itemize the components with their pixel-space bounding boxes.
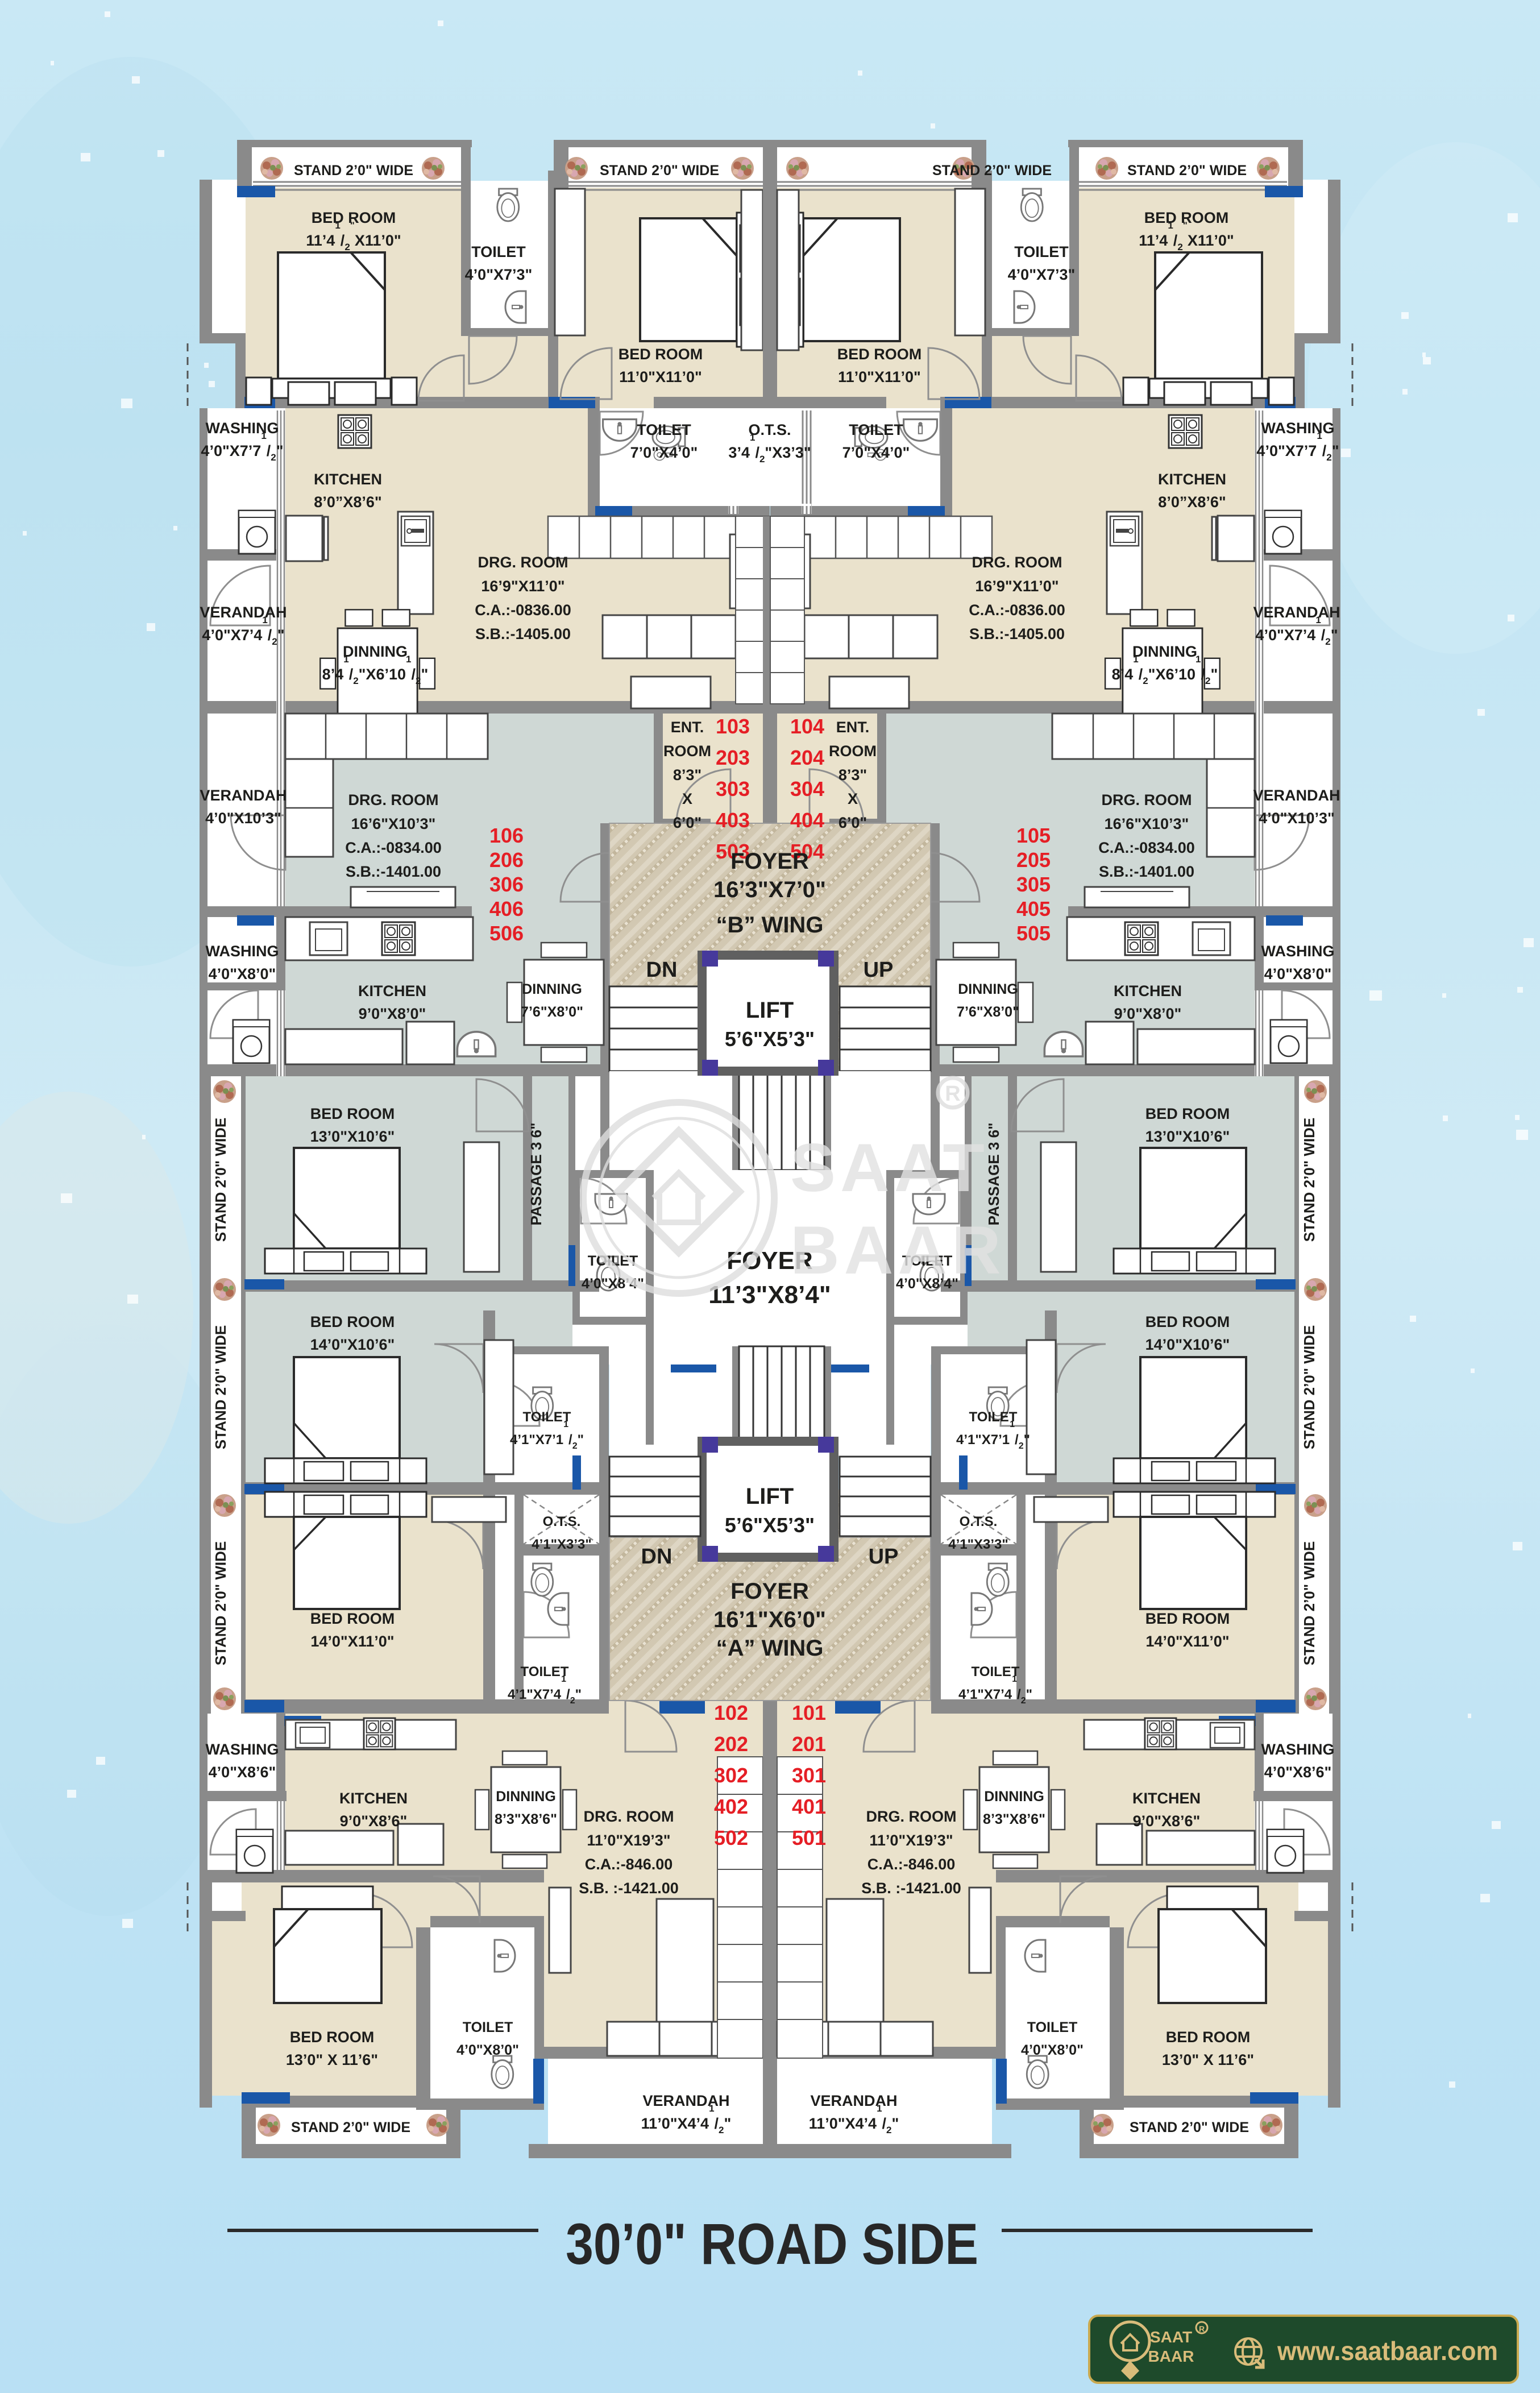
svg-text:16’9"X11’0": 16’9"X11’0"	[481, 578, 564, 595]
svg-text:4’0"X8’6": 4’0"X8’6"	[209, 1764, 276, 1781]
svg-text:14’0"X10’6": 14’0"X10’6"	[310, 1336, 395, 1353]
svg-text:C.A.:-0836.00: C.A.:-0836.00	[475, 602, 571, 619]
svg-text:FOYER: FOYER	[730, 1579, 809, 1604]
svg-text:DRG. ROOM: DRG. ROOM	[866, 1808, 957, 1825]
svg-text:301: 301	[792, 1764, 826, 1787]
svg-text:WASHING: WASHING	[1261, 1741, 1334, 1758]
svg-text:16’6"X10’3": 16’6"X10’3"	[351, 815, 436, 832]
svg-text:BED ROOM: BED ROOM	[310, 1105, 395, 1122]
svg-text:DRG. ROOM: DRG. ROOM	[348, 791, 439, 808]
svg-text:8’3"X8’6": 8’3"X8’6"	[495, 1811, 557, 1827]
svg-text:16’1"X6’0": 16’1"X6’0"	[713, 1607, 826, 1632]
svg-text:202: 202	[714, 1732, 748, 1756]
svg-text:16’3"X7’0": 16’3"X7’0"	[713, 877, 826, 902]
svg-text:303: 303	[716, 777, 750, 801]
svg-text:STAND 2’0" WIDE: STAND 2’0" WIDE	[932, 163, 1052, 179]
svg-text:4’0"X10’3": 4’0"X10’3"	[1259, 810, 1335, 827]
svg-text:106: 106	[489, 824, 524, 847]
svg-text:X: X	[682, 790, 692, 807]
svg-text:DINNING: DINNING	[984, 1789, 1044, 1805]
svg-text:8’3": 8’3"	[839, 766, 867, 783]
svg-text:KITCHEN: KITCHEN	[339, 1790, 408, 1807]
svg-text:9’0"X8’6": 9’0"X8’6"	[340, 1813, 408, 1830]
svg-text:S.B. :-1421.00: S.B. :-1421.00	[861, 1880, 961, 1897]
svg-text:7’6"X8’0": 7’6"X8’0"	[957, 1004, 1019, 1020]
svg-text:BED ROOM: BED ROOM	[837, 346, 922, 363]
svg-text:16’6"X10’3": 16’6"X10’3"	[1105, 815, 1189, 832]
svg-text:VERANDAH: VERANDAH	[1253, 787, 1340, 804]
svg-text:TOILET: TOILET	[471, 243, 526, 260]
svg-text:www.saatbaar.com: www.saatbaar.com	[1277, 2336, 1498, 2366]
svg-text:13’0" X 11’6": 13’0" X 11’6"	[286, 2051, 378, 2068]
svg-text:FOYER: FOYER	[730, 849, 809, 874]
svg-text:401: 401	[792, 1795, 826, 1818]
svg-text:103: 103	[716, 715, 750, 738]
svg-text:4’0"X10’3": 4’0"X10’3"	[205, 810, 281, 827]
svg-text:406: 406	[489, 897, 524, 920]
svg-text:11’0"X19’3": 11’0"X19’3"	[869, 1832, 953, 1849]
svg-text:14’0"X11’0": 14’0"X11’0"	[310, 1633, 394, 1650]
svg-text:DRG. ROOM: DRG. ROOM	[1102, 791, 1192, 808]
svg-text:S.B. :-1421.00: S.B. :-1421.00	[579, 1880, 679, 1897]
svg-text:STAND 2’0" WIDE: STAND 2’0" WIDE	[1301, 1541, 1318, 1665]
svg-text:VERANDAH: VERANDAH	[1253, 604, 1340, 621]
svg-text:306: 306	[489, 873, 524, 896]
svg-text:13’0"X10’6": 13’0"X10’6"	[1145, 1128, 1230, 1145]
svg-text:DN: DN	[641, 1545, 673, 1569]
svg-text:STAND 2’0" WIDE: STAND 2’0" WIDE	[600, 163, 719, 179]
svg-text:BED ROOM: BED ROOM	[1145, 1610, 1230, 1627]
svg-text:WASHING: WASHING	[1261, 420, 1334, 437]
svg-text:DINNING: DINNING	[958, 981, 1018, 997]
svg-text:“A” WING: “A” WING	[716, 1636, 824, 1661]
svg-text:DN: DN	[646, 958, 678, 982]
svg-text:104: 104	[790, 715, 824, 738]
svg-text:403: 403	[716, 808, 750, 832]
svg-text:S.B.:-1401.00: S.B.:-1401.00	[1099, 863, 1194, 880]
svg-text:205: 205	[1016, 848, 1051, 872]
svg-text:102: 102	[714, 1701, 748, 1724]
svg-text:302: 302	[714, 1764, 748, 1787]
svg-text:BED ROOM: BED ROOM	[310, 1610, 395, 1627]
svg-text:506: 506	[489, 922, 524, 945]
svg-text:11’0"X11’0": 11’0"X11’0"	[838, 368, 921, 385]
svg-text:“B” WING: “B” WING	[716, 913, 824, 938]
svg-text:KITCHEN: KITCHEN	[1114, 982, 1182, 999]
svg-text:C.A.:-0834.00: C.A.:-0834.00	[345, 839, 442, 856]
svg-text:BED ROOM: BED ROOM	[619, 346, 703, 363]
svg-text:6’0": 6’0"	[839, 814, 867, 831]
svg-text:13’0" X 11’6": 13’0" X 11’6"	[1162, 2051, 1254, 2068]
svg-text:DINNING: DINNING	[1132, 643, 1197, 660]
svg-text:STAND 2’0" WIDE: STAND 2’0" WIDE	[1301, 1325, 1318, 1449]
svg-text:BED ROOM: BED ROOM	[1145, 1105, 1230, 1122]
svg-text:UP: UP	[864, 958, 894, 982]
svg-text:206: 206	[489, 848, 524, 872]
svg-text:501: 501	[792, 1826, 826, 1849]
svg-text:4’0"X8’0": 4’0"X8’0"	[1264, 965, 1332, 982]
svg-text:ENT.: ENT.	[836, 719, 870, 736]
svg-text:STAND 2’0" WIDE: STAND 2’0" WIDE	[212, 1541, 229, 1665]
svg-text:STAND 2’0" WIDE: STAND 2’0" WIDE	[212, 1325, 229, 1449]
svg-text:7’0"X4’0": 7’0"X4’0"	[842, 444, 910, 461]
svg-text:SAAT: SAAT	[790, 1130, 989, 1206]
svg-text:14’0"X11’0": 14’0"X11’0"	[1145, 1633, 1229, 1650]
svg-text:TOILET: TOILET	[637, 421, 691, 438]
svg-text:C.A.:-846.00: C.A.:-846.00	[867, 1856, 956, 1873]
svg-text:O.T.S.: O.T.S.	[960, 1514, 998, 1529]
svg-text:PASSAGE 3 6": PASSAGE 3 6"	[528, 1123, 545, 1226]
svg-text:VERANDAH: VERANDAH	[642, 2092, 729, 2109]
svg-text:305: 305	[1016, 873, 1051, 896]
svg-text:WASHING: WASHING	[205, 943, 279, 960]
svg-text:DINNING: DINNING	[343, 643, 408, 660]
svg-text:C.A.:-0836.00: C.A.:-0836.00	[969, 602, 1065, 619]
svg-text:X: X	[848, 790, 858, 807]
svg-text:4’1"X3’3": 4’1"X3’3"	[948, 1537, 1008, 1552]
svg-text:STAND 2’0" WIDE: STAND 2’0" WIDE	[294, 163, 413, 179]
svg-text:6’0": 6’0"	[673, 814, 701, 831]
svg-text:STAND 2’0" WIDE: STAND 2’0" WIDE	[291, 2120, 410, 2135]
svg-text:7’6"X8’0": 7’6"X8’0"	[521, 1004, 583, 1020]
svg-text:TOILET: TOILET	[849, 421, 903, 438]
svg-text:505: 505	[1016, 922, 1051, 945]
svg-text:ENT.: ENT.	[671, 719, 704, 736]
svg-text:LIFT: LIFT	[746, 998, 794, 1023]
svg-text:TOILET: TOILET	[463, 2019, 513, 2035]
svg-text:WASHING: WASHING	[1261, 943, 1334, 960]
svg-text:13’0"X10’6": 13’0"X10’6"	[310, 1128, 395, 1145]
svg-text:DRG. ROOM: DRG. ROOM	[478, 554, 568, 571]
svg-text:BED ROOM: BED ROOM	[1166, 2029, 1251, 2046]
svg-text:4’0"X7’3": 4’0"X7’3"	[465, 266, 533, 283]
svg-text:DINNING: DINNING	[522, 981, 582, 997]
svg-text:KITCHEN: KITCHEN	[1158, 471, 1226, 488]
svg-text:9’0"X8’0": 9’0"X8’0"	[1114, 1005, 1182, 1022]
svg-text:TOILET: TOILET	[1027, 2019, 1077, 2035]
svg-text:BED ROOM: BED ROOM	[290, 2029, 375, 2046]
svg-text:11’0"X11’0": 11’0"X11’0"	[619, 368, 702, 385]
svg-text:ROOM: ROOM	[663, 743, 711, 760]
svg-text:R: R	[945, 1082, 960, 1106]
svg-text:BED ROOM: BED ROOM	[1145, 1313, 1230, 1330]
svg-text:VERANDAH: VERANDAH	[810, 2092, 897, 2109]
svg-text:4’0"X8’0": 4’0"X8’0"	[456, 2042, 519, 2058]
svg-text:DINNING: DINNING	[496, 1789, 556, 1805]
svg-text:404: 404	[790, 808, 824, 832]
svg-text:405: 405	[1016, 897, 1051, 920]
svg-text:C.A.:-846.00: C.A.:-846.00	[585, 1856, 673, 1873]
svg-text:VERANDAH: VERANDAH	[200, 604, 287, 621]
svg-text:STAND 2’0" WIDE: STAND 2’0" WIDE	[1301, 1118, 1318, 1242]
svg-text:4’0"X7’3": 4’0"X7’3"	[1008, 266, 1076, 283]
svg-text:402: 402	[714, 1795, 748, 1818]
svg-text:BAAR: BAAR	[790, 1212, 1006, 1288]
svg-text:4’0"X8’0": 4’0"X8’0"	[1021, 2042, 1084, 2058]
svg-text:ROOM: ROOM	[829, 743, 877, 760]
svg-text:VERANDAH: VERANDAH	[200, 787, 287, 804]
svg-text:8’0”X8’6": 8’0”X8’6"	[1158, 493, 1226, 511]
svg-text:304: 304	[790, 777, 824, 801]
svg-text:C.A.:-0834.00: C.A.:-0834.00	[1098, 839, 1195, 856]
svg-text:5’6"X5’3": 5’6"X5’3"	[725, 1027, 815, 1051]
svg-text:16’9"X11’0": 16’9"X11’0"	[975, 578, 1059, 595]
svg-text:7’0"X4’0": 7’0"X4’0"	[630, 444, 698, 461]
svg-text:105: 105	[1016, 824, 1051, 847]
svg-text:STAND 2’0" WIDE: STAND 2’0" WIDE	[1127, 163, 1247, 179]
svg-text:9’0"X8’6": 9’0"X8’6"	[1133, 1813, 1201, 1830]
svg-text:SAAT: SAAT	[1150, 2328, 1192, 2346]
svg-text:4’0"X8’0": 4’0"X8’0"	[209, 965, 276, 982]
svg-text:KITCHEN: KITCHEN	[314, 471, 382, 488]
svg-text:S.B.:-1405.00: S.B.:-1405.00	[969, 625, 1065, 642]
svg-text:KITCHEN: KITCHEN	[1132, 1790, 1201, 1807]
svg-text:WASHING: WASHING	[205, 1741, 279, 1758]
svg-text:TOILET: TOILET	[1014, 243, 1069, 260]
svg-text:201: 201	[792, 1732, 826, 1756]
svg-text:BED ROOM: BED ROOM	[310, 1313, 395, 1330]
svg-text:8’3": 8’3"	[673, 766, 701, 783]
svg-text:204: 204	[790, 746, 824, 769]
svg-text:KITCHEN: KITCHEN	[358, 982, 426, 999]
svg-text:101: 101	[792, 1701, 826, 1724]
svg-text:4’1"X3’3": 4’1"X3’3"	[532, 1537, 592, 1552]
svg-text:14’0"X10’6": 14’0"X10’6"	[1145, 1336, 1230, 1353]
svg-text:O.T.S.: O.T.S.	[543, 1514, 581, 1529]
svg-text:UP: UP	[869, 1545, 899, 1569]
svg-text:STAND 2’0" WIDE: STAND 2’0" WIDE	[1130, 2120, 1249, 2135]
svg-text:DRG. ROOM: DRG. ROOM	[972, 554, 1062, 571]
svg-text:WASHING: WASHING	[205, 420, 279, 437]
svg-text:S.B.:-1401.00: S.B.:-1401.00	[346, 863, 441, 880]
svg-text:30’0" ROAD SIDE: 30’0" ROAD SIDE	[566, 2212, 978, 2276]
svg-text:4’0"X8’6": 4’0"X8’6"	[1264, 1764, 1332, 1781]
svg-text:STAND 2’0" WIDE: STAND 2’0" WIDE	[212, 1118, 229, 1242]
svg-text:502: 502	[714, 1826, 748, 1849]
svg-text:5’6"X5’3": 5’6"X5’3"	[725, 1513, 815, 1537]
svg-text:9’0"X8’0": 9’0"X8’0"	[359, 1005, 426, 1022]
svg-text:S.B.:-1405.00: S.B.:-1405.00	[475, 625, 571, 642]
svg-text:DRG. ROOM: DRG. ROOM	[584, 1808, 674, 1825]
svg-text:11’0"X19’3": 11’0"X19’3"	[587, 1832, 670, 1849]
svg-text:203: 203	[716, 746, 750, 769]
svg-text:BAAR: BAAR	[1148, 2348, 1194, 2365]
svg-text:8’0”X8’6": 8’0”X8’6"	[314, 493, 381, 511]
svg-text:R: R	[1199, 2324, 1205, 2333]
svg-text:LIFT: LIFT	[746, 1484, 794, 1509]
svg-text:8’3"X8’6": 8’3"X8’6"	[983, 1811, 1045, 1827]
